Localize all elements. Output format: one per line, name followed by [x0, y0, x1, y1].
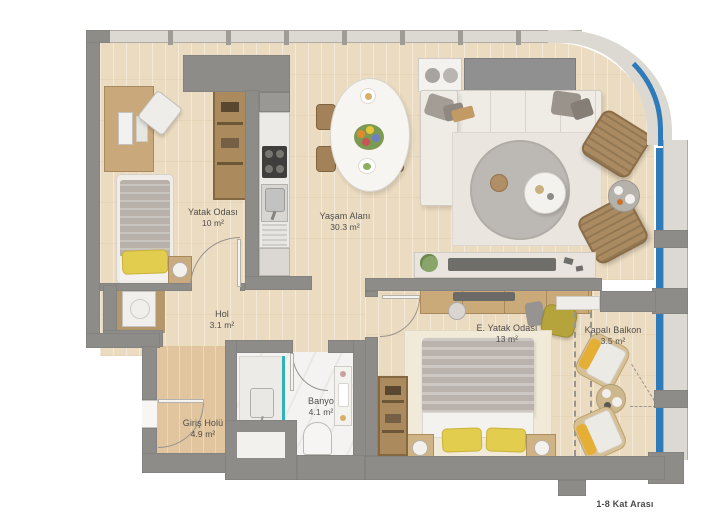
room-area: 10 m² — [163, 218, 263, 229]
wardrobe-clothes — [221, 102, 239, 112]
window-post — [342, 30, 347, 45]
room-name: Giriş Holü — [163, 418, 243, 429]
coffee-table — [524, 172, 566, 214]
vanity-decor — [340, 371, 346, 377]
wall-top-corner — [86, 30, 112, 43]
wardrobe — [213, 88, 247, 200]
room-label-giris-holu: Giriş Holü 4.9 m² — [163, 418, 243, 440]
food — [365, 93, 372, 100]
wardrobe-rail — [217, 122, 243, 125]
plate — [602, 389, 611, 398]
side-table-wood — [490, 174, 508, 192]
food — [363, 163, 371, 170]
window-post — [654, 390, 688, 408]
flower — [372, 134, 380, 142]
window-post — [168, 30, 173, 45]
room-name: E. Yatak Odası — [447, 323, 567, 334]
window-curve-glass — [548, 34, 663, 146]
wall-balcony-top — [600, 291, 656, 312]
room-name: Hol — [182, 309, 262, 320]
speaker — [425, 68, 440, 83]
kitchen-cabinet-low — [259, 248, 290, 276]
plant — [420, 254, 438, 272]
room-label-hol: Hol 3.1 m² — [182, 309, 262, 331]
wardrobe-rail — [382, 400, 404, 403]
washer-door — [130, 299, 150, 319]
room-area: 3.1 m² — [182, 320, 262, 331]
wall-master-left — [365, 337, 378, 456]
flower — [362, 138, 370, 146]
table-lamp — [534, 440, 550, 456]
wardrobe-rail — [382, 430, 404, 433]
wall-bath-bottom — [297, 455, 365, 480]
stove — [262, 146, 287, 178]
window-post — [400, 30, 405, 45]
wall-entry-bottom — [142, 453, 232, 473]
door-leaf-bathroom — [290, 353, 294, 391]
wall-entry-left — [142, 346, 157, 400]
sink-basin — [265, 188, 285, 212]
table-lamp — [172, 262, 188, 278]
wall-master-top — [365, 278, 602, 291]
window-post — [458, 30, 463, 45]
laptop — [118, 112, 133, 145]
wall-kitchen-bottom — [245, 276, 312, 290]
room-name: Yatak Odası — [163, 207, 263, 218]
drainboard — [262, 224, 287, 246]
burner — [265, 150, 273, 158]
table-lamp — [412, 440, 428, 456]
plate — [360, 88, 376, 104]
floor-range-caption: 1-8 Kat Arası — [565, 499, 685, 509]
plate — [625, 194, 635, 204]
burner — [276, 165, 284, 173]
wall-left — [86, 30, 100, 348]
wall-bottom-step — [558, 480, 586, 496]
room-area: 13 m² — [447, 334, 567, 345]
balcony-door-swing — [630, 406, 656, 407]
plate — [614, 186, 623, 195]
media-unit — [418, 58, 462, 92]
toilet — [303, 422, 332, 455]
wardrobe — [378, 376, 408, 456]
double-bed-blanket — [422, 338, 534, 416]
room-label-yasam-alani: Yaşam Alanı 30.3 m² — [295, 211, 395, 233]
single-bed-pillow — [122, 249, 169, 275]
burner — [265, 165, 273, 173]
door-leaf-entry — [158, 399, 204, 403]
balcony-shelf — [556, 296, 600, 310]
flower — [366, 126, 374, 134]
dresser-tray — [453, 292, 515, 301]
window-post — [516, 30, 521, 45]
washing-machine — [122, 291, 156, 327]
wardrobe-clothes — [385, 386, 401, 395]
room-label-kapali-balkon: Kapalı Balkon 3.5 m² — [573, 325, 653, 347]
wardrobe-clothes — [221, 138, 239, 148]
wall-master-left — [365, 291, 378, 297]
side-table — [608, 180, 640, 212]
room-label-e-yatak-odasi: E. Yatak Odası 13 m² — [447, 323, 567, 345]
bed-pillow — [486, 427, 527, 452]
shower-head — [250, 388, 274, 418]
decor — [547, 193, 554, 200]
room-name: Kapalı Balkon — [573, 325, 653, 336]
room-area: 4.1 m² — [281, 407, 361, 418]
sink-faucet — [271, 211, 277, 220]
window-post — [226, 30, 231, 45]
burner — [276, 150, 284, 158]
room-name: Yaşam Alanı — [295, 211, 395, 222]
stool — [448, 302, 466, 320]
speaker — [443, 68, 458, 83]
window-post — [284, 30, 289, 45]
door-leaf-master — [382, 295, 420, 299]
room-label-yatak-odasi: Yatak Odası 10 m² — [163, 207, 263, 229]
kitchen-sink — [261, 184, 288, 222]
wall-kitchen-left — [245, 90, 259, 283]
tv — [448, 258, 556, 271]
door-leaf-bedroom — [237, 239, 241, 287]
room-name: Banyo — [281, 396, 361, 407]
room-label-banyo: Banyo 4.1 m² — [281, 396, 361, 418]
cup — [617, 199, 623, 205]
room-area: 30.3 m² — [295, 222, 395, 233]
wardrobe-clothes — [385, 414, 401, 423]
wall-column-block — [183, 55, 290, 92]
wardrobe-rail — [217, 162, 243, 165]
decor — [535, 185, 544, 194]
floor-plan: Yatak Odası 10 m² Yaşam Alanı 30.3 m² Ho… — [0, 0, 703, 520]
plate — [358, 158, 376, 174]
room-area: 4.9 m² — [163, 429, 243, 440]
entry-door-threshold — [142, 400, 157, 428]
bed-pillow — [442, 427, 483, 452]
window-post — [652, 288, 688, 314]
wall-bottom — [365, 456, 665, 480]
kitchen-cabinet-top — [259, 92, 290, 112]
shaft-inset — [237, 432, 285, 458]
window-post — [654, 230, 688, 248]
flower-bouquet — [354, 124, 384, 150]
room-area: 3.5 m² — [573, 336, 653, 347]
flower — [357, 130, 365, 138]
